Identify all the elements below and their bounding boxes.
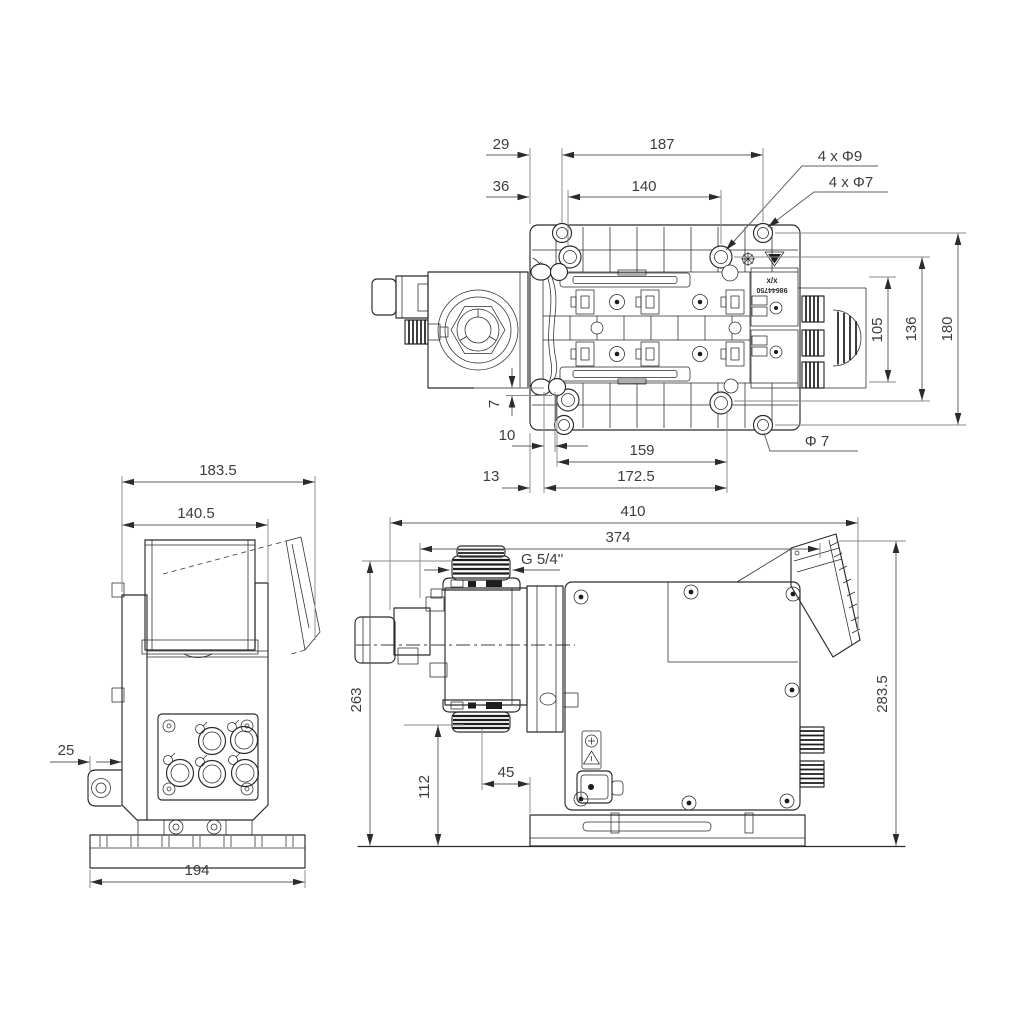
discharge-port-thread — [452, 712, 510, 732]
pump-dimension-drawing: x/x 98644750 — [0, 0, 1024, 1024]
dim-label-7: 7 — [486, 400, 503, 408]
dim-label-194: 194 — [184, 862, 209, 879]
dim-label-159: 159 — [629, 442, 654, 459]
connector-plate — [158, 714, 259, 800]
dim-label-140-5: 140.5 — [177, 505, 215, 522]
warning-triangle-icon — [765, 252, 784, 266]
mains-plug — [577, 771, 623, 803]
dim-label-172: 172.5 — [617, 468, 655, 485]
dim-label-183: 183.5 — [199, 462, 237, 479]
side-view: 410 374 G 5/4'' 263 112 45 283.5 — [348, 503, 906, 847]
dim-label-263: 263 — [348, 687, 365, 712]
pump-head-side — [355, 546, 563, 732]
front-view: 183.5 140.5 25 194 — [50, 462, 320, 888]
dim-label-180: 180 — [939, 316, 956, 341]
dim-label-thread: G 5/4'' — [521, 551, 564, 568]
tilted-panel-ghost — [163, 537, 320, 655]
control-panel-front — [142, 537, 320, 658]
suction-port-thread — [452, 546, 510, 580]
cable-ports — [164, 720, 259, 788]
top-view: x/x 98644750 — [372, 136, 966, 493]
dim-label-140: 140 — [631, 178, 656, 195]
mounting-lug — [88, 770, 121, 806]
motor-connector-top — [372, 276, 428, 318]
dim-label-4xphi9: 4 x Φ9 — [818, 148, 863, 165]
dim-label-10: 10 — [499, 427, 516, 444]
dim-label-25: 25 — [58, 742, 75, 759]
mounting-holes — [531, 224, 773, 435]
base-side — [358, 813, 905, 847]
knurled-knobs-right — [802, 296, 824, 388]
dim-label-112: 112 — [416, 775, 433, 799]
dim-label-283: 283.5 — [874, 675, 891, 713]
dim-label-45: 45 — [498, 764, 515, 781]
dim-label-36: 36 — [493, 178, 510, 195]
mounting-plate: x/x 98644750 — [530, 224, 800, 435]
dim-label-29: 29 — [493, 136, 510, 153]
warning-label — [582, 731, 601, 769]
pump-head-top — [372, 272, 528, 388]
housing-side — [563, 549, 824, 810]
dim-label-136: 136 — [903, 316, 920, 341]
leader-holes-inner — [768, 192, 888, 227]
knurled-knob-top — [405, 320, 448, 344]
control-panel-side — [791, 534, 860, 657]
gear-icon — [741, 252, 755, 266]
side-view-dimensions: 410 374 G 5/4'' 263 112 45 283.5 — [348, 503, 906, 846]
din-rail-slots — [560, 270, 690, 384]
dim-label-187: 187 — [649, 136, 674, 153]
plate-marking-partno: 98644750 — [756, 286, 787, 293]
valve-assembly — [355, 589, 447, 677]
pump-body-front — [112, 583, 268, 835]
dim-label-4xphi7: 4 x Φ7 — [829, 174, 874, 191]
plate-right-section — [751, 268, 798, 388]
dim-label-410: 410 — [620, 503, 645, 520]
right-assembly-top — [798, 288, 866, 388]
technical-drawing-page: x/x 98644750 — [0, 0, 1024, 1024]
dim-label-phi7: Φ 7 — [805, 433, 829, 450]
dim-label-105: 105 — [869, 317, 886, 342]
adjustment-knobs-side — [800, 727, 824, 787]
top-view-dimensions: 29 187 36 140 4 x Φ9 4 x Φ7 105 136 180 … — [474, 136, 966, 493]
plate-marking-ratio: x/x — [766, 276, 778, 285]
dim-label-374: 374 — [605, 529, 630, 546]
dim-label-13: 13 — [483, 468, 500, 485]
